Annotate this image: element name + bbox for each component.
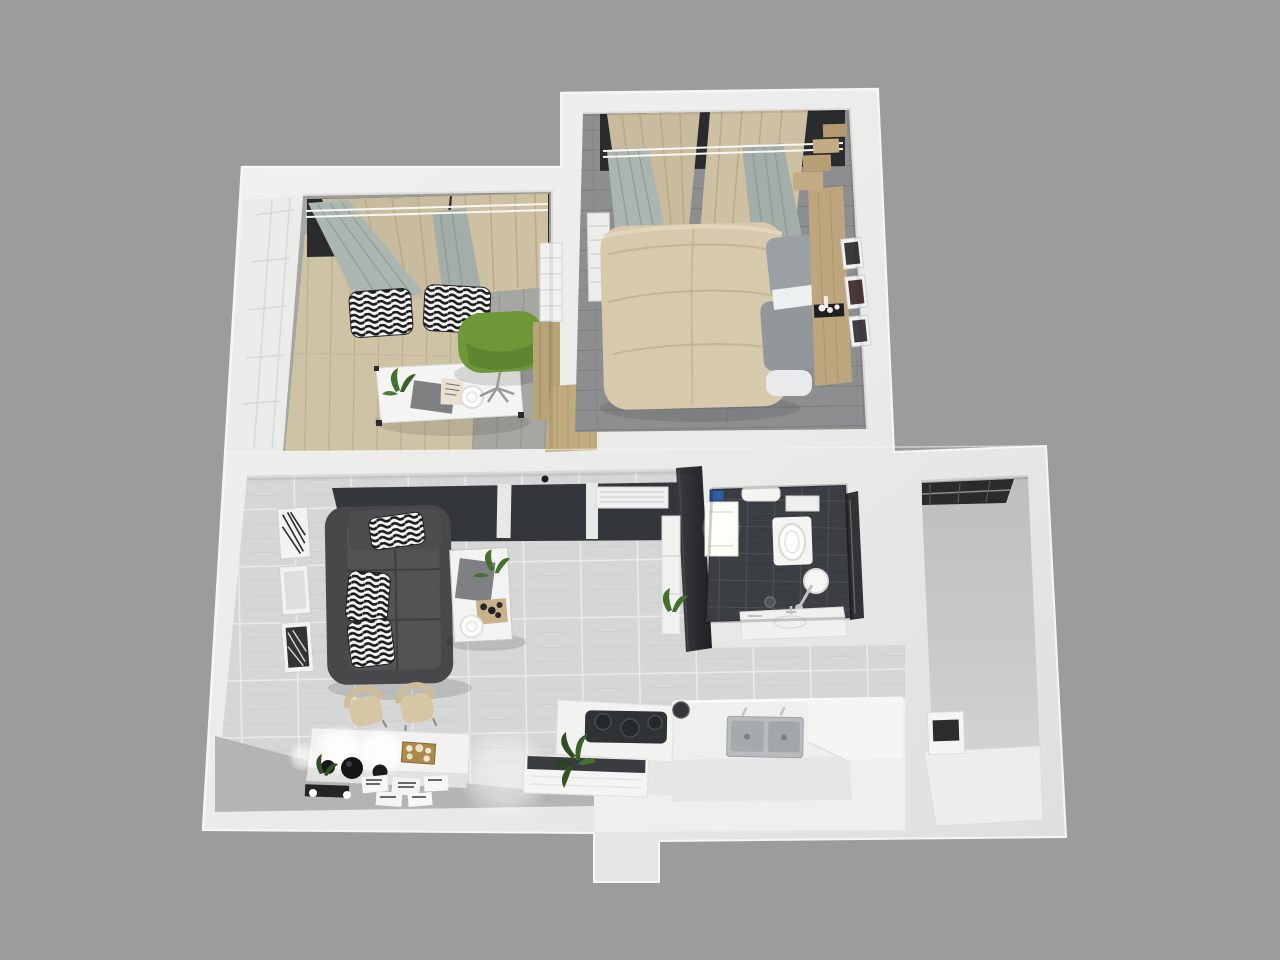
entry-floor-dot-2 <box>343 791 351 799</box>
sofa-zebra-pillow-1 <box>368 511 426 550</box>
living-ac-vent <box>596 487 668 508</box>
floorplan-render <box>0 0 1280 960</box>
bathroom-toilet <box>772 516 813 565</box>
bed-sheet-roll <box>766 370 812 396</box>
room-bedroom <box>575 110 872 432</box>
entry-floor-dot-1 <box>309 789 317 797</box>
console-lamp-glow-3 <box>288 742 318 772</box>
office-zebra-pillow-1 <box>348 288 413 338</box>
office-chair-green <box>456 310 545 374</box>
bedroom-bed <box>600 222 789 411</box>
living-top-gap-1 <box>497 484 512 538</box>
bed-pillow-2 <box>760 298 819 372</box>
console-vase-2 <box>341 757 363 779</box>
bathroom-sink-counter <box>740 606 848 640</box>
sofa-zebra-pillow-2 <box>345 570 391 623</box>
room-balcony <box>921 477 1043 826</box>
bathroom-washer <box>701 502 741 556</box>
room-office <box>225 192 597 452</box>
kitchen-cooktop <box>585 710 668 743</box>
console-gold-box <box>401 742 435 764</box>
kitchen-back-burner <box>673 702 689 718</box>
coffee-table <box>450 547 515 642</box>
balcony-appliance <box>927 711 964 754</box>
bathroom-shelf <box>786 496 819 511</box>
living-ceiling-dot <box>542 476 549 483</box>
sofa-zebra-pillow-3 <box>346 617 395 668</box>
room-bathroom <box>701 485 864 640</box>
balcony-counter <box>924 746 1043 826</box>
kitchen-counter-front <box>672 756 852 802</box>
floorplan-stage <box>0 0 1280 960</box>
office-desk-plate <box>461 386 483 408</box>
shower-drain <box>765 597 775 607</box>
